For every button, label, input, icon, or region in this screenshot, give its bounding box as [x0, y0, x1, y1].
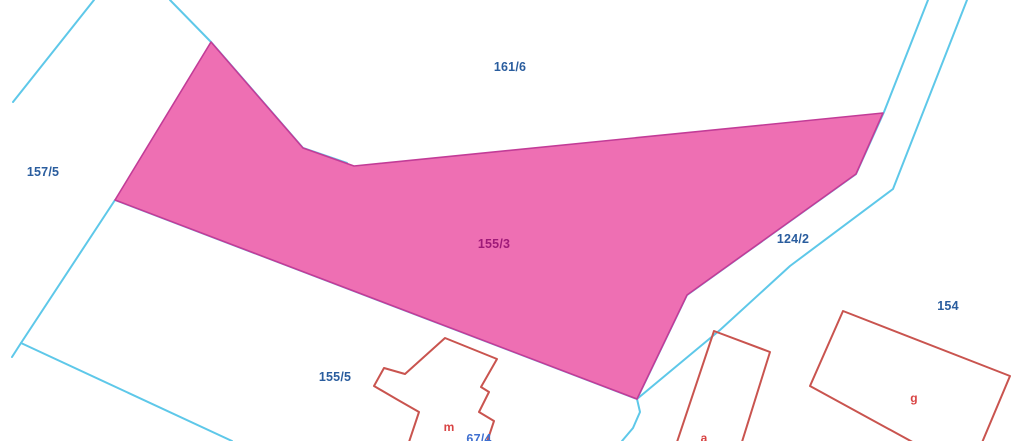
boundary-line-155-5 [21, 343, 232, 441]
parcel-label-155-3: 155/3 [478, 237, 510, 251]
building-g-outline [810, 311, 1010, 441]
map-viewport[interactable]: 161/6 157/5 155/3 124/2 154 155/5 67/4 m… [0, 0, 1024, 441]
parcel-label-161-6: 161/6 [494, 60, 526, 74]
parcel-label-154: 154 [937, 299, 958, 313]
building-label-g: g [910, 391, 918, 405]
parcel-label-67-4: 67/4 [466, 432, 491, 441]
highlighted-parcel-155-3[interactable] [115, 42, 883, 399]
boundary-line-upper-left [13, 0, 94, 102]
parcel-label-155-5: 155/5 [319, 370, 351, 384]
building-label-a: a [701, 431, 708, 441]
building-a-outline [676, 331, 770, 441]
parcel-label-124-2: 124/2 [777, 232, 809, 246]
parcel-label-157-5: 157/5 [27, 165, 59, 179]
building-label-m: m [444, 420, 455, 434]
building-m-outline [374, 338, 497, 441]
